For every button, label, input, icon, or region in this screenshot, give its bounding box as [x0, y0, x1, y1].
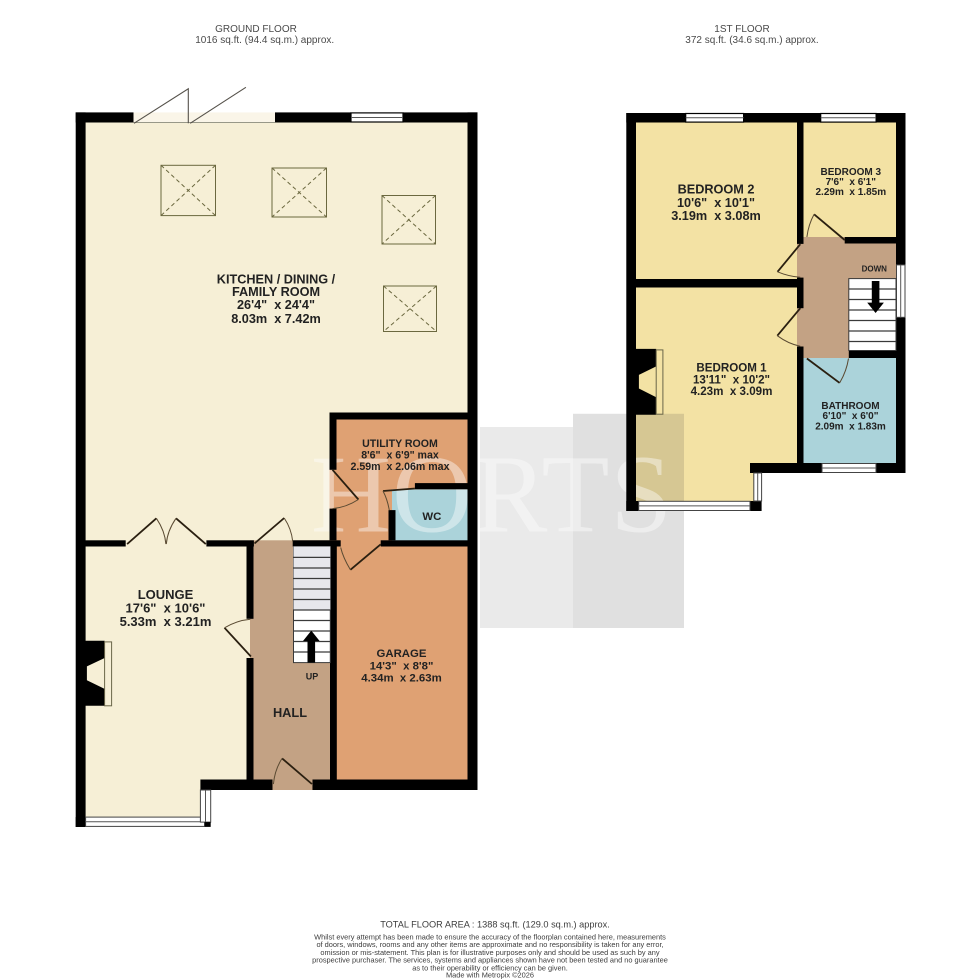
svg-text:8.03m x 7.42m: 8.03m x 7.42m: [231, 312, 321, 326]
svg-text:2.29m x 1.85m: 2.29m x 1.85m: [815, 187, 886, 198]
svg-text:1ST FLOOR: 1ST FLOOR: [714, 24, 769, 35]
svg-text:DOWN: DOWN: [862, 264, 888, 273]
svg-text:4.23m x 3.09m: 4.23m x 3.09m: [691, 385, 773, 398]
svg-text:GROUND FLOOR: GROUND FLOOR: [215, 24, 297, 35]
svg-text:WC: WC: [422, 511, 441, 523]
svg-text:7'6" x 6'1": 7'6" x 6'1": [826, 177, 877, 188]
svg-text:UP: UP: [306, 672, 319, 682]
svg-text:UTILITY ROOM: UTILITY ROOM: [362, 438, 438, 450]
svg-text:5.33m x 3.21m: 5.33m x 3.21m: [120, 614, 212, 629]
svg-text:14'3" x 8'8": 14'3" x 8'8": [370, 660, 434, 672]
svg-text:BEDROOM 2: BEDROOM 2: [678, 182, 755, 196]
svg-text:8'6" x 6'9" max: 8'6" x 6'9" max: [361, 449, 439, 461]
svg-text:TOTAL FLOOR AREA : 1388 sq.ft.: TOTAL FLOOR AREA : 1388 sq.ft. (129.0 sq…: [380, 919, 610, 929]
svg-text:6'10" x 6'0": 6'10" x 6'0": [823, 411, 879, 422]
svg-text:FAMILY ROOM: FAMILY ROOM: [232, 285, 320, 299]
svg-text:372 sq.ft. (34.6 sq.m.) approx: 372 sq.ft. (34.6 sq.m.) approx.: [685, 35, 818, 46]
svg-text:3.19m x 3.08m: 3.19m x 3.08m: [671, 209, 761, 223]
svg-text:4.34m x 2.63m: 4.34m x 2.63m: [361, 673, 441, 685]
svg-text:2.59m x 2.06m max: 2.59m x 2.06m max: [351, 461, 450, 473]
svg-text:1016 sq.ft. (94.4 sq.m.) appro: 1016 sq.ft. (94.4 sq.m.) approx.: [195, 35, 334, 46]
svg-text:2.09m x 1.83m: 2.09m x 1.83m: [815, 421, 886, 432]
svg-text:Made with Metropix ©2026: Made with Metropix ©2026: [446, 971, 534, 980]
svg-text:HALL: HALL: [273, 705, 307, 720]
svg-text:GARAGE: GARAGE: [377, 648, 427, 660]
svg-text:26'4" x 24'4": 26'4" x 24'4": [237, 298, 315, 312]
svg-text:10'6" x 10'1": 10'6" x 10'1": [677, 196, 755, 210]
